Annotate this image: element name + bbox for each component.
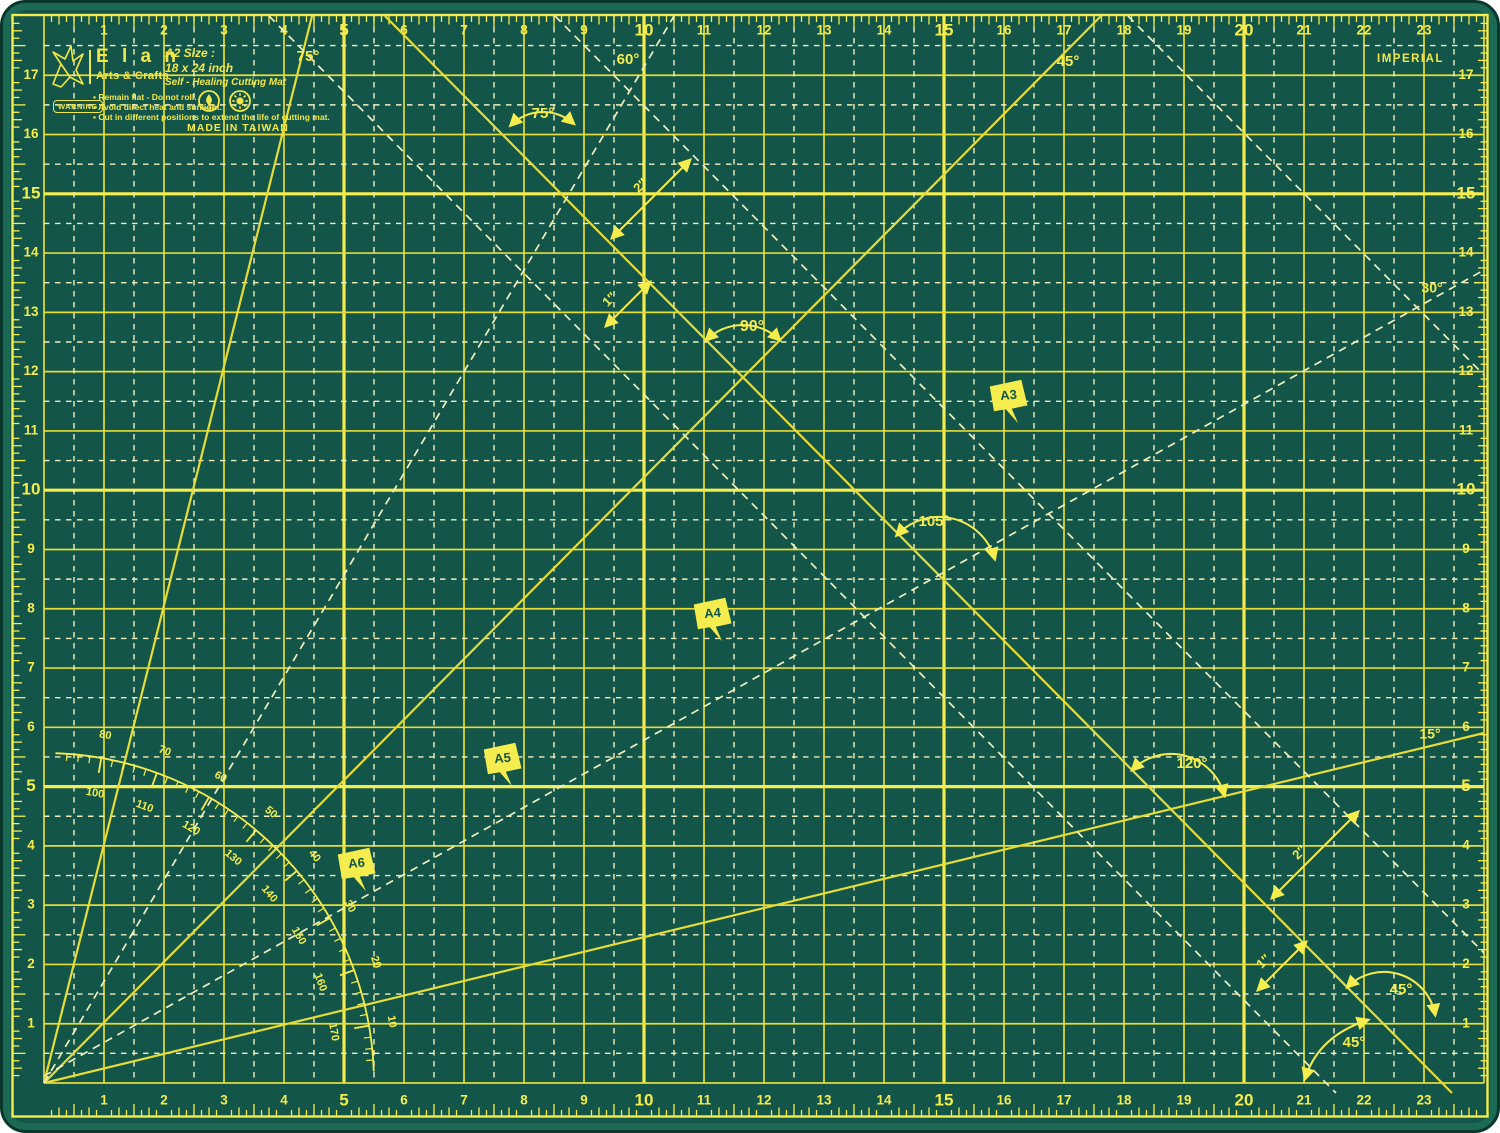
ruler-number-bottom-6: 6 xyxy=(400,1093,408,1108)
ruler-number-top-16: 16 xyxy=(996,23,1012,38)
ruler-number-bottom-3: 3 xyxy=(220,1093,228,1108)
ruler-number-right-16: 16 xyxy=(1458,126,1474,141)
ruler-number-bottom-12: 12 xyxy=(756,1093,771,1108)
ruler-number-bottom-14: 14 xyxy=(876,1093,892,1108)
ruler-number-top-2: 2 xyxy=(160,23,168,38)
ruler-number-bottom-5: 5 xyxy=(339,1090,348,1109)
ruler-number-top-17: 17 xyxy=(1056,23,1071,38)
ruler-number-left-4: 4 xyxy=(27,837,35,852)
ruler-number-right-14: 14 xyxy=(1458,245,1474,260)
ruler-number-right-4: 4 xyxy=(1462,837,1470,852)
ruler-number-top-14: 14 xyxy=(876,23,892,38)
ruler-number-right-2: 2 xyxy=(1462,956,1470,971)
ruler-number-right-11: 11 xyxy=(1459,422,1474,437)
ruler-number-left-9: 9 xyxy=(27,541,35,556)
ruler-number-bottom-11: 11 xyxy=(697,1093,712,1108)
ruler-number-left-2: 2 xyxy=(27,956,35,971)
ruler-number-bottom-9: 9 xyxy=(580,1093,588,1108)
ruler-number-top-22: 22 xyxy=(1356,23,1371,38)
ruler-number-right-8: 8 xyxy=(1462,600,1470,615)
product-name: Self - Healing Cutting Mat xyxy=(165,77,286,88)
ruler-number-right-5: 5 xyxy=(1461,776,1470,795)
angle-label-60-top: 60° xyxy=(617,51,640,68)
ruler-number-left-11: 11 xyxy=(24,422,39,437)
ruler-number-bottom-17: 17 xyxy=(1056,1093,1071,1108)
ruler-number-left-15: 15 xyxy=(22,183,41,202)
angle-label-45-br-upper: 45° xyxy=(1390,981,1413,998)
ruler-number-top-1: 1 xyxy=(100,23,108,38)
ruler-number-right-7: 7 xyxy=(1462,660,1470,675)
ruler-number-bottom-18: 18 xyxy=(1116,1093,1132,1108)
ruler-number-top-10: 10 xyxy=(635,20,654,39)
ruler-number-top-8: 8 xyxy=(520,23,528,38)
angle-label-75-arc: 75° xyxy=(532,105,555,122)
ruler-number-top-15: 15 xyxy=(935,20,954,39)
ruler-number-top-4: 4 xyxy=(280,23,288,38)
ruler-number-top-19: 19 xyxy=(1176,23,1191,38)
ruler-number-top-21: 21 xyxy=(1296,23,1312,38)
ruler-number-right-1: 1 xyxy=(1462,1015,1470,1030)
angle-label-30-right: 30° xyxy=(1421,280,1442,296)
flag-label-A6: A6 xyxy=(348,855,366,871)
protractor-tick xyxy=(365,1049,372,1050)
ruler-number-bottom-16: 16 xyxy=(996,1093,1012,1108)
made-in-label: MADE IN TAIWAN xyxy=(187,122,289,134)
no-heat-flame-icon xyxy=(199,91,219,111)
size-label: A2 Size : xyxy=(165,46,215,60)
flag-label-A5: A5 xyxy=(494,750,512,766)
ruler-number-top-13: 13 xyxy=(816,23,832,38)
ruler-number-top-9: 9 xyxy=(580,23,588,38)
ruler-number-bottom-1: 1 xyxy=(100,1093,108,1108)
unit-system-label: IMPERIAL xyxy=(1377,53,1444,65)
angle-label-120: 120° xyxy=(1176,755,1207,772)
ruler-number-bottom-20: 20 xyxy=(1235,1090,1254,1109)
ruler-number-top-11: 11 xyxy=(697,23,712,38)
ruler-number-left-8: 8 xyxy=(27,600,35,615)
ruler-number-left-6: 6 xyxy=(27,719,35,734)
ruler-number-bottom-23: 23 xyxy=(1416,1093,1432,1108)
ruler-number-bottom-22: 22 xyxy=(1356,1093,1371,1108)
ruler-number-right-6: 6 xyxy=(1462,719,1470,734)
ruler-number-top-20: 20 xyxy=(1235,20,1254,39)
care-icons-svg xyxy=(198,88,256,114)
ruler-number-bottom-15: 15 xyxy=(935,1090,954,1109)
ruler-number-bottom-7: 7 xyxy=(460,1093,468,1108)
angle-label-75-top: 75° xyxy=(297,48,320,65)
warning-line-1: Remain flat - Do not roll. xyxy=(93,92,197,102)
ruler-number-top-18: 18 xyxy=(1116,23,1132,38)
ruler-number-left-5: 5 xyxy=(26,776,35,795)
ruler-number-right-3: 3 xyxy=(1462,897,1470,912)
logo-divider xyxy=(89,50,91,84)
ruler-number-bottom-13: 13 xyxy=(816,1093,832,1108)
ruler-number-left-13: 13 xyxy=(23,304,39,319)
ruler-number-top-7: 7 xyxy=(460,23,468,38)
mat-surface xyxy=(10,10,1490,1123)
angle-label-45-br-lower: 45° xyxy=(1343,1034,1366,1051)
ruler-number-bottom-8: 8 xyxy=(520,1093,528,1108)
ruler-number-top-3: 3 xyxy=(220,23,228,38)
ruler-number-top-23: 23 xyxy=(1416,23,1432,38)
sunlight-icon xyxy=(230,91,250,111)
ruler-number-left-1: 1 xyxy=(27,1015,35,1030)
angle-label-15-right: 15° xyxy=(1419,726,1440,742)
protractor-outer-label-10: 10 xyxy=(385,1015,399,1029)
ruler-number-right-10: 10 xyxy=(1457,480,1476,499)
ruler-number-right-15: 15 xyxy=(1457,183,1476,202)
protractor-outer-label-80: 80 xyxy=(98,728,112,742)
ruler-number-bottom-10: 10 xyxy=(635,1090,654,1109)
ruler-number-left-7: 7 xyxy=(27,660,35,675)
flag-label-A4: A4 xyxy=(704,605,723,621)
ruler-number-bottom-21: 21 xyxy=(1296,1093,1312,1108)
brand-subtitle: Arts & Crafts xyxy=(96,70,169,82)
ruler-number-left-17: 17 xyxy=(23,67,38,82)
ruler-number-left-14: 14 xyxy=(23,245,39,260)
ruler-number-left-12: 12 xyxy=(23,363,38,378)
ruler-number-right-9: 9 xyxy=(1462,541,1470,556)
ruler-number-top-5: 5 xyxy=(339,20,348,39)
angle-label-90: 90° xyxy=(740,318,764,335)
size-value: 18 x 24 inch xyxy=(165,61,233,75)
ruler-number-left-3: 3 xyxy=(27,897,35,912)
ruler-number-bottom-2: 2 xyxy=(160,1093,168,1108)
ruler-number-top-12: 12 xyxy=(756,23,771,38)
angle-label-105: 105° xyxy=(918,513,949,530)
ruler-number-right-13: 13 xyxy=(1458,304,1474,319)
flag-label-A3: A3 xyxy=(1000,387,1018,403)
origami-bird-icon xyxy=(50,44,86,90)
ruler-number-right-17: 17 xyxy=(1458,67,1473,82)
cutting-mat: 1122334455667788991010111112121313141415… xyxy=(0,0,1500,1133)
protractor-tick xyxy=(78,755,79,762)
cutting-mat-photo: 1122334455667788991010111112121313141415… xyxy=(0,0,1500,1133)
ruler-number-right-12: 12 xyxy=(1458,363,1473,378)
ruler-number-left-16: 16 xyxy=(23,126,39,141)
ruler-number-left-10: 10 xyxy=(22,480,41,499)
ruler-number-bottom-19: 19 xyxy=(1176,1093,1191,1108)
angle-label-45-top: 45° xyxy=(1057,53,1080,70)
ruler-number-bottom-4: 4 xyxy=(280,1093,288,1108)
